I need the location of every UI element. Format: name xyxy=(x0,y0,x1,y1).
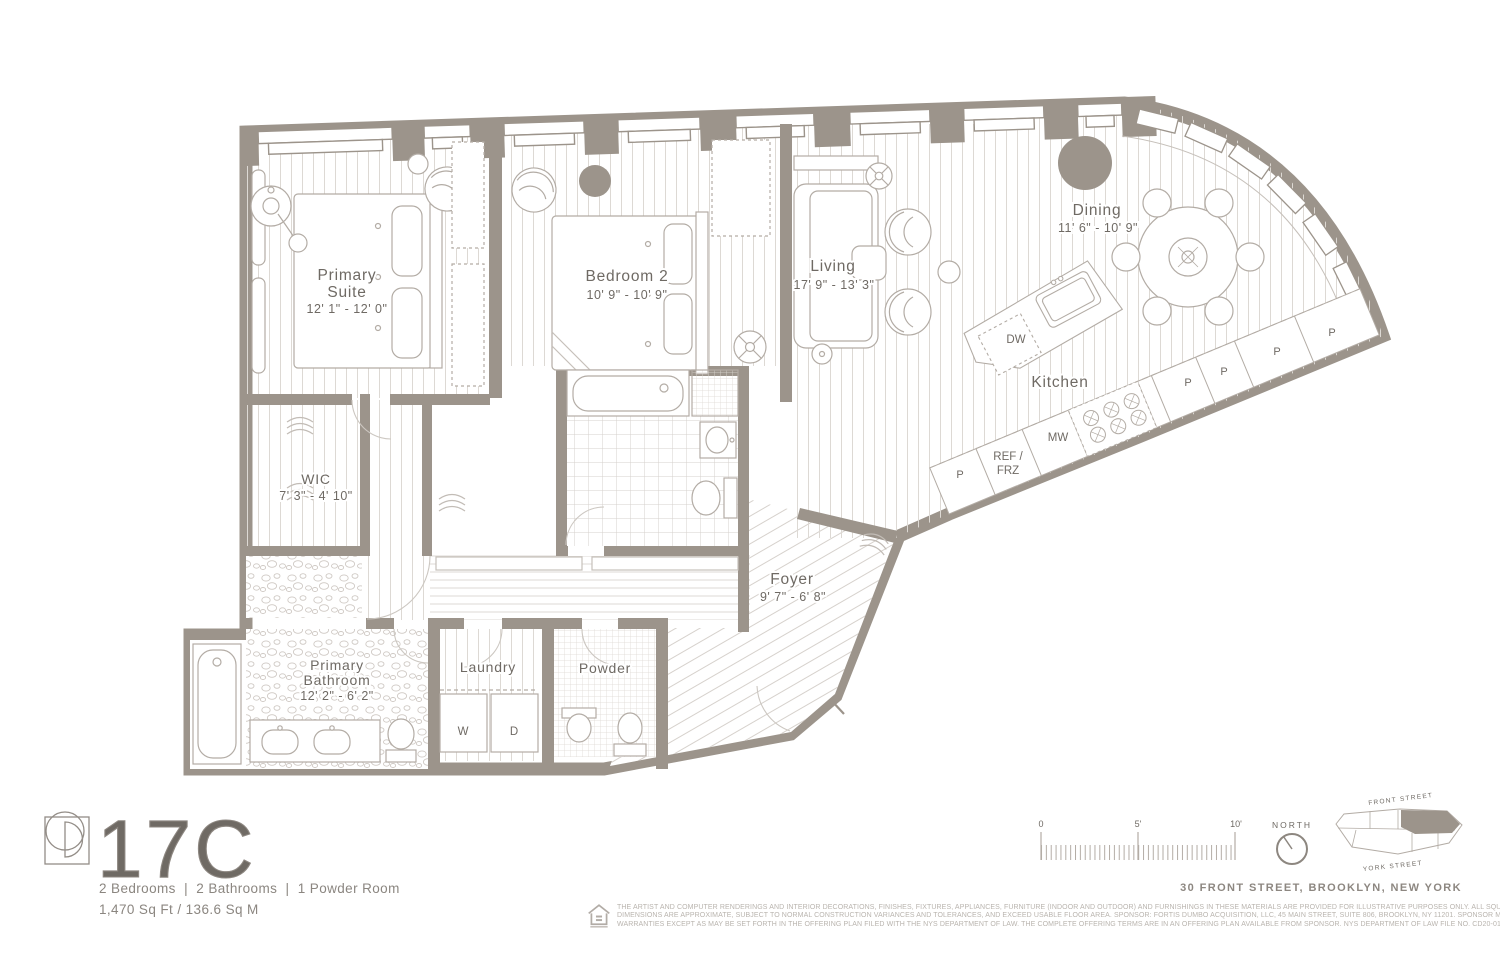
unit-area: 1,470 Sq Ft / 136.6 Sq M xyxy=(99,902,259,917)
svg-text:Dining: Dining xyxy=(1073,202,1122,219)
bathtub-icon xyxy=(567,370,689,416)
label-pantry: P xyxy=(956,469,963,481)
scale-end: 10' xyxy=(1230,819,1242,829)
svg-text:10' 9" - 10' 9": 10' 9" - 10' 9" xyxy=(587,288,668,302)
bathroom2-toilet-icon xyxy=(692,478,737,518)
side-table-icon xyxy=(408,154,428,174)
bathroom2-sink-icon xyxy=(700,422,736,458)
unit-location-highlight xyxy=(1401,810,1460,834)
floorplan-drawing: Primary Suite 12' 1" - 12' 0" Bedroom 2 … xyxy=(0,0,1500,971)
powder-floor xyxy=(554,629,656,757)
svg-text:Bathroom: Bathroom xyxy=(303,672,370,688)
label-dryer: D xyxy=(510,726,518,738)
label-primary-bathroom: Primary Bathroom 12' 2" - 6' 2" xyxy=(300,657,373,703)
label-pantry: P xyxy=(1273,346,1280,358)
ceiling-fan-icon xyxy=(866,163,892,189)
svg-text:7' 3" - 4' 10": 7' 3" - 4' 10" xyxy=(279,489,352,503)
label-ref: REF / xyxy=(993,451,1023,463)
ceiling-fan-icon xyxy=(734,331,766,363)
label-dw: DW xyxy=(1006,334,1025,346)
primary-tub-icon xyxy=(193,644,241,764)
svg-text:Suite: Suite xyxy=(327,284,366,301)
svg-text:12' 2" - 6' 2": 12' 2" - 6' 2" xyxy=(300,689,373,703)
disclaimer-line: DIMENSIONS ARE APPROXIMATE, SUBJECT TO N… xyxy=(617,912,1467,920)
keyplan-minimap: FRONT STREET YORK STREET xyxy=(1336,792,1462,873)
double-vanity-icon xyxy=(250,720,380,762)
svg-text:12' 1" - 12' 0": 12' 1" - 12' 0" xyxy=(307,302,388,316)
svg-text:WIC: WIC xyxy=(301,471,331,487)
svg-text:Primary: Primary xyxy=(310,657,364,673)
corridor-shelf xyxy=(436,557,582,570)
label-kitchen: Kitchen xyxy=(1031,374,1088,391)
north-compass-icon: NORTH xyxy=(1272,820,1312,864)
building-address: 30 FRONT STREET, BROOKLYN, NEW YORK xyxy=(1180,882,1462,894)
side-table-icon xyxy=(938,261,960,283)
svg-text:17' 9" - 13' 3": 17' 9" - 13' 3" xyxy=(794,278,875,292)
pouf-icon xyxy=(579,165,611,197)
closet-shelf xyxy=(452,142,484,248)
scale-start: 0 xyxy=(1038,819,1043,829)
brand-logo-icon xyxy=(45,812,89,864)
living-armchair-icon xyxy=(885,209,931,255)
coffee-table-icon xyxy=(852,246,886,280)
primary-window-seat xyxy=(252,278,265,373)
minimap-street-top: FRONT STREET xyxy=(1368,792,1434,807)
floor-lamp-icon xyxy=(812,344,832,364)
bedroom2-wardrobe xyxy=(712,140,770,236)
equal-housing-icon xyxy=(586,902,612,928)
minimap-street-bottom: YORK STREET xyxy=(1363,860,1424,873)
closet-shelf xyxy=(452,264,484,386)
disclaimer-line: WARRANTIES EXCEPT AS MAY BE SET FORTH IN… xyxy=(617,921,1467,929)
living-armchair-icon xyxy=(885,289,931,335)
floorplan-sheet: Primary Suite 12' 1" - 12' 0" Bedroom 2 … xyxy=(0,0,1500,971)
label-laundry: Laundry xyxy=(460,659,516,675)
svg-text:Foyer: Foyer xyxy=(770,571,814,588)
unit-summary: 2 Bedrooms | 2 Bathrooms | 1 Powder Room xyxy=(99,881,400,896)
north-label: NORTH xyxy=(1272,820,1312,830)
tub-niche xyxy=(692,370,738,416)
svg-text:11' 6" - 10' 9": 11' 6" - 10' 9" xyxy=(1058,221,1138,235)
scale-bar: 0 5' 10' xyxy=(1038,819,1242,860)
primary-toilet-icon xyxy=(386,719,416,762)
pouf-icon xyxy=(1058,136,1112,190)
label-washer: W xyxy=(458,726,469,738)
svg-text:Living: Living xyxy=(810,258,855,275)
label-powder: Powder xyxy=(579,660,631,676)
label-frz: FRZ xyxy=(997,465,1019,477)
label-pantry: P xyxy=(1328,327,1335,339)
corridor-shelf xyxy=(592,557,738,570)
media-console-icon xyxy=(794,156,878,170)
svg-text:Bedroom 2: Bedroom 2 xyxy=(585,268,668,285)
legal-disclaimer: THE ARTIST AND COMPUTER RENDERINGS AND I… xyxy=(617,904,1467,929)
label-mw: MW xyxy=(1048,432,1069,444)
label-pantry: P xyxy=(1184,377,1191,389)
svg-text:Primary: Primary xyxy=(318,267,377,284)
disclaimer-line: THE ARTIST AND COMPUTER RENDERINGS AND I… xyxy=(617,904,1467,912)
svg-text:9' 7" - 6' 8": 9' 7" - 6' 8" xyxy=(760,590,826,604)
label-pantry: P xyxy=(1220,366,1227,378)
shower-floor xyxy=(246,556,362,618)
scale-mid: 5' xyxy=(1135,819,1142,829)
closet-floor xyxy=(366,400,424,620)
